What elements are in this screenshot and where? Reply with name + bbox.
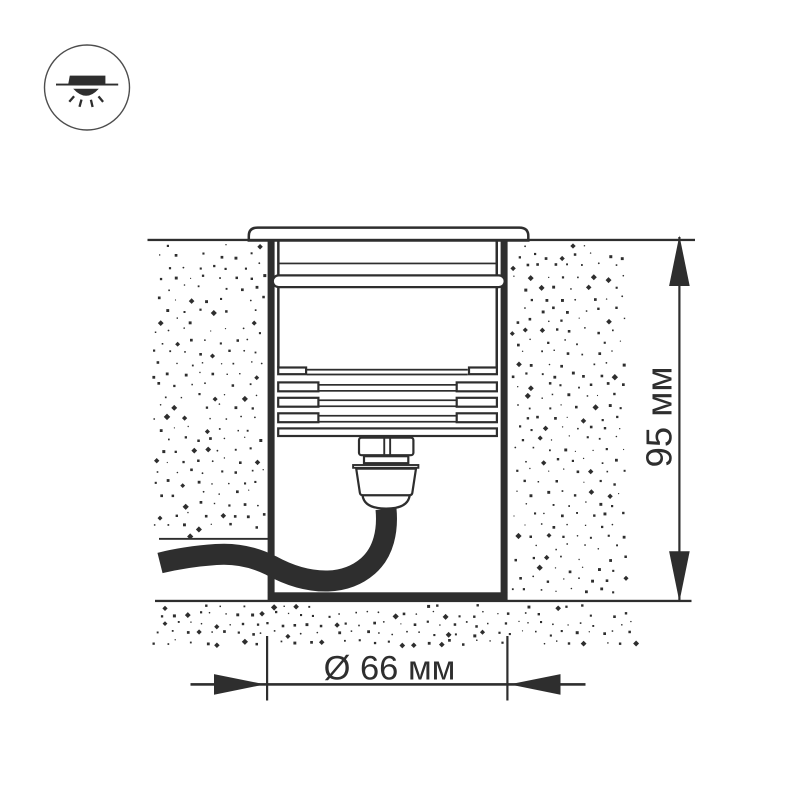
svg-text:95 мм: 95 мм <box>639 367 680 468</box>
svg-text:Ø 66 мм: Ø 66 мм <box>324 649 456 687</box>
